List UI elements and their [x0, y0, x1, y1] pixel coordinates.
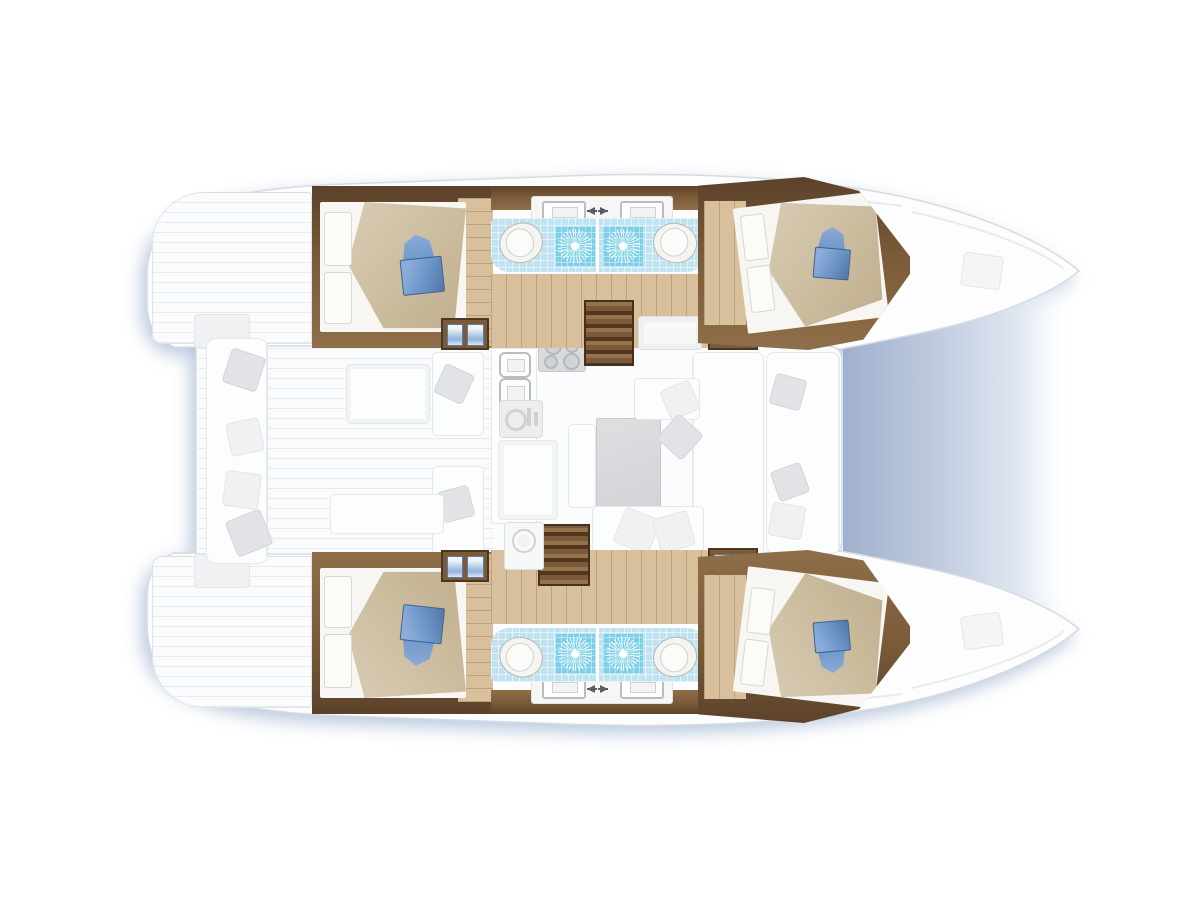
cockpit-table — [346, 364, 430, 424]
starboard-staircase — [538, 524, 590, 586]
faucet-arrow-icon — [600, 207, 608, 215]
oven-grill-icon — [499, 400, 543, 438]
saloon-shelf — [568, 424, 596, 508]
toilet-icon — [648, 217, 702, 269]
head-partition — [596, 628, 599, 682]
berth-group — [733, 562, 900, 712]
head-tile-floor — [491, 628, 705, 682]
hanging-clothes-icon — [467, 324, 484, 346]
head-partition — [596, 218, 599, 272]
deck-hatch-icon — [960, 611, 1004, 650]
white-pillow — [324, 212, 352, 266]
oven-dial — [505, 409, 527, 431]
oven-bar — [534, 412, 538, 426]
cockpit-pillow — [222, 470, 263, 511]
sunburst-drain-icon — [555, 634, 595, 674]
hanging-locker — [441, 550, 489, 582]
white-pillow — [324, 272, 352, 324]
hanging-clothes-icon — [447, 324, 464, 346]
toilet-icon — [648, 631, 702, 683]
washer-drum-icon — [512, 529, 536, 553]
faucet-arrow-icon — [587, 207, 595, 215]
toilet-icon — [494, 217, 548, 269]
washer-cabinet — [504, 522, 544, 570]
head-starboard — [491, 624, 709, 714]
white-pillow — [324, 634, 352, 688]
cockpit-pillow — [225, 417, 265, 457]
head-tile-floor — [491, 218, 705, 272]
oven-bar — [527, 408, 531, 426]
hanging-clothes-icon — [447, 556, 464, 578]
fridge-unit — [498, 440, 558, 520]
corridor-cabinet — [638, 316, 702, 350]
toilet-icon — [494, 631, 548, 683]
port-staircase — [584, 300, 634, 366]
hanging-locker — [441, 318, 489, 350]
floor-plan — [0, 0, 1200, 900]
burner-icon — [544, 355, 558, 369]
sunburst-drain-icon — [555, 226, 595, 266]
faucet-arrow-icon — [587, 685, 595, 693]
blue-pillow — [813, 622, 851, 675]
cockpit-bench-fwd — [330, 494, 444, 534]
head-port — [491, 186, 709, 276]
blue-pillow — [397, 232, 443, 294]
galley-sink — [499, 352, 531, 378]
berth-group — [733, 188, 900, 338]
forward-seat-pillow — [767, 501, 806, 540]
hanging-clothes-icon — [467, 556, 484, 578]
deck-hatch-icon — [960, 251, 1004, 290]
sunburst-drain-icon — [603, 634, 643, 674]
blue-pillow — [813, 226, 851, 279]
blue-pillow — [397, 606, 443, 668]
saloon-table — [596, 418, 661, 512]
faucet-arrow-icon — [600, 685, 608, 693]
burner-icon — [563, 353, 580, 370]
white-pillow — [324, 576, 352, 628]
sunburst-drain-icon — [603, 226, 643, 266]
